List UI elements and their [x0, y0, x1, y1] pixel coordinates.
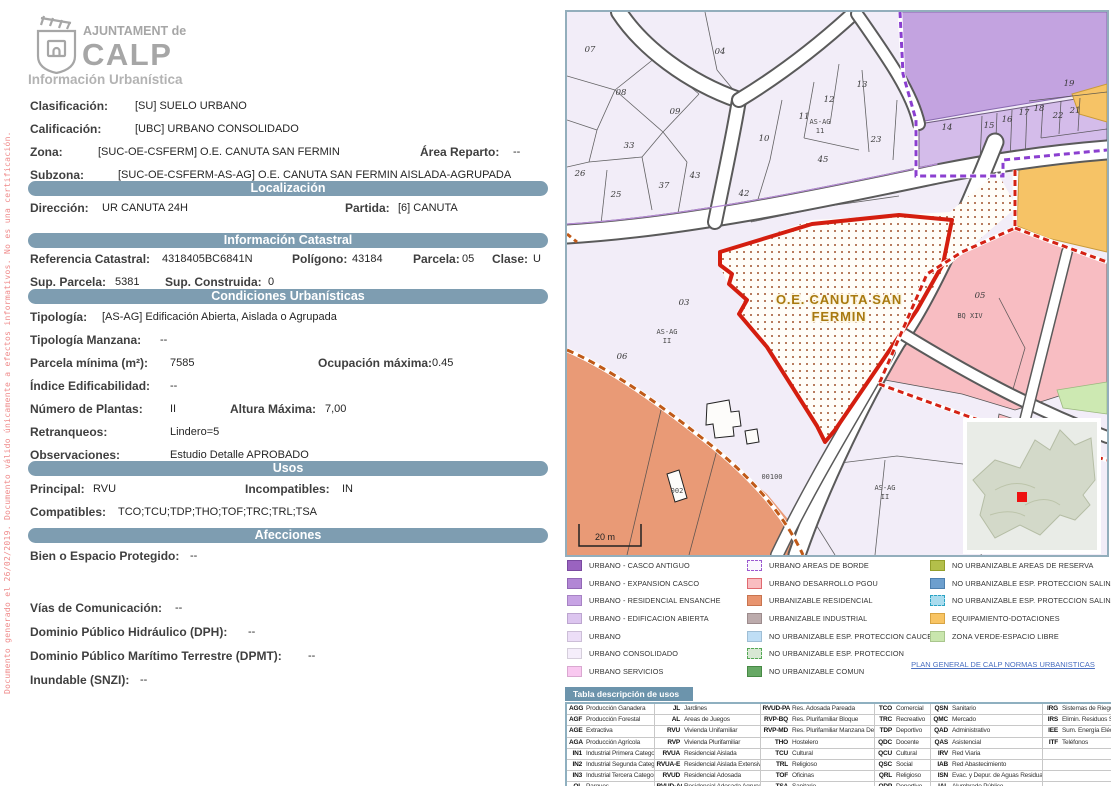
field-inundable: Inundable (SNZI): --: [30, 673, 561, 690]
legend-swatch: [567, 595, 582, 606]
map-label: 33: [624, 141, 635, 151]
map-label: 002: [671, 487, 684, 495]
map-label: 21: [1069, 106, 1081, 116]
legend-label: URBANO DESARROLLO PGOU: [769, 579, 878, 588]
field-direccion: Dirección: UR CANUTA 24H Partida: [6] CA…: [30, 201, 561, 218]
legend-column-1: URBANO - CASCO ANTIGUOURBANO - EXPANSION…: [567, 557, 747, 680]
field-vias: Vías de Comunicación: --: [30, 601, 561, 618]
section-header-localizacion: Localización: [28, 181, 548, 196]
legend-swatch: [567, 631, 582, 642]
map-label: AS-AG: [809, 118, 830, 126]
map-label: 17: [1019, 108, 1030, 118]
usos-table-row: QLParquesRVUD-AGResidencial Adosada Agru…: [566, 782, 1111, 786]
map-label: 11: [799, 112, 810, 122]
logo-line1: AJUNTAMENT de: [83, 24, 186, 38]
field-ref-catastral: Referencia Catastral: 4318405BC6841N Pol…: [30, 252, 561, 269]
field-compatibles: Compatibles: TCO;TCU;TDP;THO;TOF;TRC;TRL…: [30, 505, 561, 522]
legend-item: URBANO - EDIFICACION ABIERTA: [567, 610, 747, 628]
legend-swatch: [747, 560, 762, 571]
legend-item: URBANIZABLE INDUSTRIAL: [747, 610, 927, 628]
map-label: 03: [679, 298, 690, 308]
legend-item: NO URBANIZABLE AREAS DE RESERVA: [930, 557, 1110, 575]
overview-inset-map: [965, 420, 1099, 552]
legend-item: NO URBANIZABLE ESP. PROTECCION CAUCES: [747, 627, 927, 645]
legend-item: EQUIPAMIENTO-DOTACIONES: [930, 610, 1110, 628]
logo-line2: CALP: [82, 37, 172, 72]
legend-swatch: [747, 595, 762, 606]
legend-swatch: [930, 595, 945, 606]
legend-item: NO URBANIZABLE ESP. PROTECCION SALINAS A…: [930, 575, 1110, 593]
plan-general-link[interactable]: PLAN GENERAL DE CALP NORMAS URBANISTICAS: [895, 660, 1111, 669]
map-label: 15: [984, 121, 995, 131]
field-calificacion: Calificación: [UBC] URBANO CONSOLIDADO: [30, 122, 561, 139]
legend-label: ZONA VERDE-ESPACIO LIBRE: [952, 632, 1059, 641]
usos-table-row: IN1Industrial Primera CategoríaRVUAResid…: [566, 748, 1111, 759]
legend-item: URBANO AREAS DE BORDE: [747, 557, 927, 575]
field-clasificacion: Clasificación: [SU] SUELO URBANO: [30, 99, 561, 116]
map-label: 12: [824, 95, 835, 105]
legend-swatch: [567, 613, 582, 624]
map-label: 23: [870, 135, 882, 145]
map-label: 22: [1052, 111, 1064, 121]
cadastral-map[interactable]: 0704080913121110234533262537434214151617…: [565, 10, 1109, 557]
usos-table-row: IN2Industrial Segunda CategoríaRVUA-ERes…: [566, 760, 1111, 771]
usos-table-row: AGFProducción ForestalALAreas de JuegosR…: [566, 715, 1111, 726]
legend-swatch: [747, 648, 762, 659]
legend-label: URBANIZABLE RESIDENCIAL: [769, 596, 873, 605]
map-label: 18: [1034, 104, 1045, 114]
legend-swatch: [567, 578, 582, 589]
map-label: 04: [715, 47, 726, 57]
map-label: 11: [816, 127, 824, 135]
legend-swatch: [567, 560, 582, 571]
section-header-catastral: Información Catastral: [28, 233, 548, 248]
legend-label: NO URBANIZABLE AREAS DE RESERVA: [952, 561, 1094, 570]
map-label: 16: [1002, 115, 1013, 125]
map-label: 14: [942, 123, 953, 133]
field-indice: Índice Edificabilidad: --: [30, 379, 561, 396]
legend-label: URBANIZABLE INDUSTRIAL: [769, 614, 867, 623]
map-label: 09: [670, 107, 681, 117]
legend-swatch: [747, 666, 762, 677]
map-label: 25: [610, 190, 622, 200]
zone-title-line1: O.E. CANUTA SAN: [776, 292, 902, 307]
map-label: BQ XIV: [957, 312, 983, 320]
legend-item: URBANO - EXPANSION CASCO: [567, 575, 747, 593]
usos-table-row: AGAProducción AgrícolaRVPVivienda Plurif…: [566, 737, 1111, 748]
map-label: 45: [817, 155, 829, 165]
section-header-usos: Usos: [28, 461, 548, 476]
usos-table-section: Tabla descripción de usos AGGProducción …: [565, 684, 1111, 786]
map-label: 13: [857, 80, 868, 90]
watermark-text: Documento generado el 26/02/2019. Docume…: [3, 76, 12, 694]
usos-table-row: AGGProducción GanaderaJLJardinesRVUD-PAR…: [566, 703, 1111, 715]
map-label: 05: [975, 291, 986, 301]
section-header-condiciones: Condiciones Urbanísticas: [28, 289, 548, 304]
legend-label: URBANO AREAS DE BORDE: [769, 561, 869, 570]
map-label: 07: [585, 45, 596, 55]
calp-logo: AJUNTAMENT de CALP: [26, 12, 206, 74]
field-retranqueos: Retranqueos: Lindero=5: [30, 425, 561, 442]
field-tipologia-manzana: Tipología Manzana: --: [30, 333, 561, 350]
legend-item: URBANO DESARROLLO PGOU: [747, 575, 927, 593]
legend-item: ZONA VERDE-ESPACIO LIBRE: [930, 627, 1110, 645]
map-label: 10: [759, 134, 770, 144]
legend-item: URBANO CONSOLIDADO: [567, 645, 747, 663]
legend-swatch: [747, 613, 762, 624]
legend-item: URBANO SERVICIOS: [567, 663, 747, 681]
legend-swatch: [747, 631, 762, 642]
legend-label: URBANO - EXPANSION CASCO: [589, 579, 699, 588]
legend-swatch: [930, 613, 945, 624]
legend-column-3: NO URBANIZABLE AREAS DE RESERVANO URBANI…: [930, 557, 1110, 645]
legend-swatch: [930, 578, 945, 589]
field-zona: Zona: [SUC-OE-CSFERM] O.E. CANUTA SAN FE…: [30, 145, 561, 162]
map-label: II: [663, 337, 671, 345]
section-header-afecciones: Afecciones: [28, 528, 548, 543]
field-plantas: Número de Plantas: II Altura Máxima: 7,0…: [30, 402, 561, 419]
usos-table-row: IN3Industrial Tercera CategoríaRVUDResid…: [566, 771, 1111, 782]
legend-label: NO URBANIZABLE COMUN: [769, 667, 864, 676]
map-label: 19: [1064, 79, 1075, 89]
location-marker: [1017, 492, 1027, 502]
legend-label: EQUIPAMIENTO-DOTACIONES: [952, 614, 1060, 623]
field-dph: Dominio Público Hidráulico (DPH): --: [30, 625, 561, 642]
legend-label: NO URBANIZABLE ESP. PROTECCION: [769, 649, 904, 658]
legend-item: URBANO - CASCO ANTIGUO: [567, 557, 747, 575]
legend-label: URBANO SERVICIOS: [589, 667, 663, 676]
legend-swatch: [567, 648, 582, 659]
map-legend: URBANO - CASCO ANTIGUOURBANO - EXPANSION…: [565, 557, 1111, 681]
legend-label: NO URBANIZABLE ESP. PROTECCION SALINAS A…: [952, 579, 1111, 588]
legend-label: NO URBANIZABLE ESP. PROTECCION SALINAS: [952, 596, 1111, 605]
legend-label: URBANO - CASCO ANTIGUO: [589, 561, 690, 570]
legend-item: URBANO: [567, 627, 747, 645]
scale-label: 20 m: [595, 532, 615, 542]
map-label: 37: [659, 181, 670, 191]
field-principal: Principal: RVU Incompatibles: IN: [30, 482, 561, 499]
map-label: AS-AG: [656, 328, 677, 336]
field-parcela-minima: Parcela mínima (m²): 7585 Ocupación máxi…: [30, 356, 561, 373]
map-label: 08: [616, 88, 627, 98]
map-label: 43: [689, 171, 701, 181]
legend-label: NO URBANIZABLE ESP. PROTECCION CAUCES: [769, 632, 937, 641]
legend-label: URBANO: [589, 632, 621, 641]
map-label: 06: [617, 352, 628, 362]
shield-icon: [38, 16, 75, 73]
usos-table: AGGProducción GanaderaJLJardinesRVUD-PAR…: [565, 702, 1111, 786]
legend-item: URBANO - RESIDENCIAL ENSANCHE: [567, 592, 747, 610]
legend-swatch: [930, 560, 945, 571]
cadastral-map-svg: 0704080913121110234533262537434214151617…: [567, 12, 1107, 555]
legend-item: NO URBANIZABLE ESP. PROTECCION SALINAS: [930, 592, 1110, 610]
legend-swatch: [930, 631, 945, 642]
legend-swatch: [567, 666, 582, 677]
field-dpmt: Dominio Público Marítimo Terrestre (DPMT…: [30, 649, 561, 666]
logo-subtitle: Información Urbanística: [28, 72, 183, 87]
legend-swatch: [747, 578, 762, 589]
field-bien-protegido: Bien o Espacio Protegido: --: [30, 549, 561, 566]
map-label: 00100: [761, 473, 782, 481]
legend-label: URBANO - RESIDENCIAL ENSANCHE: [589, 596, 721, 605]
usos-table-row: AGEExtractivaRVUVivienda UnifamiliarRVP-…: [566, 726, 1111, 737]
map-label: AS-AG: [874, 484, 895, 492]
legend-item: URBANIZABLE RESIDENCIAL: [747, 592, 927, 610]
map-label: 26: [574, 169, 586, 179]
map-label: II: [881, 493, 889, 501]
usos-table-title: Tabla descripción de usos: [565, 687, 693, 701]
zone-title-line2: FERMIN: [812, 309, 867, 324]
legend-label: URBANO CONSOLIDADO: [589, 649, 678, 658]
page: Documento generado el 26/02/2019. Docume…: [0, 0, 1111, 786]
map-label: 42: [738, 189, 750, 199]
field-tipologia: Tipología: [AS-AG] Edificación Abierta, …: [30, 310, 561, 327]
legend-label: URBANO - EDIFICACION ABIERTA: [589, 614, 709, 623]
